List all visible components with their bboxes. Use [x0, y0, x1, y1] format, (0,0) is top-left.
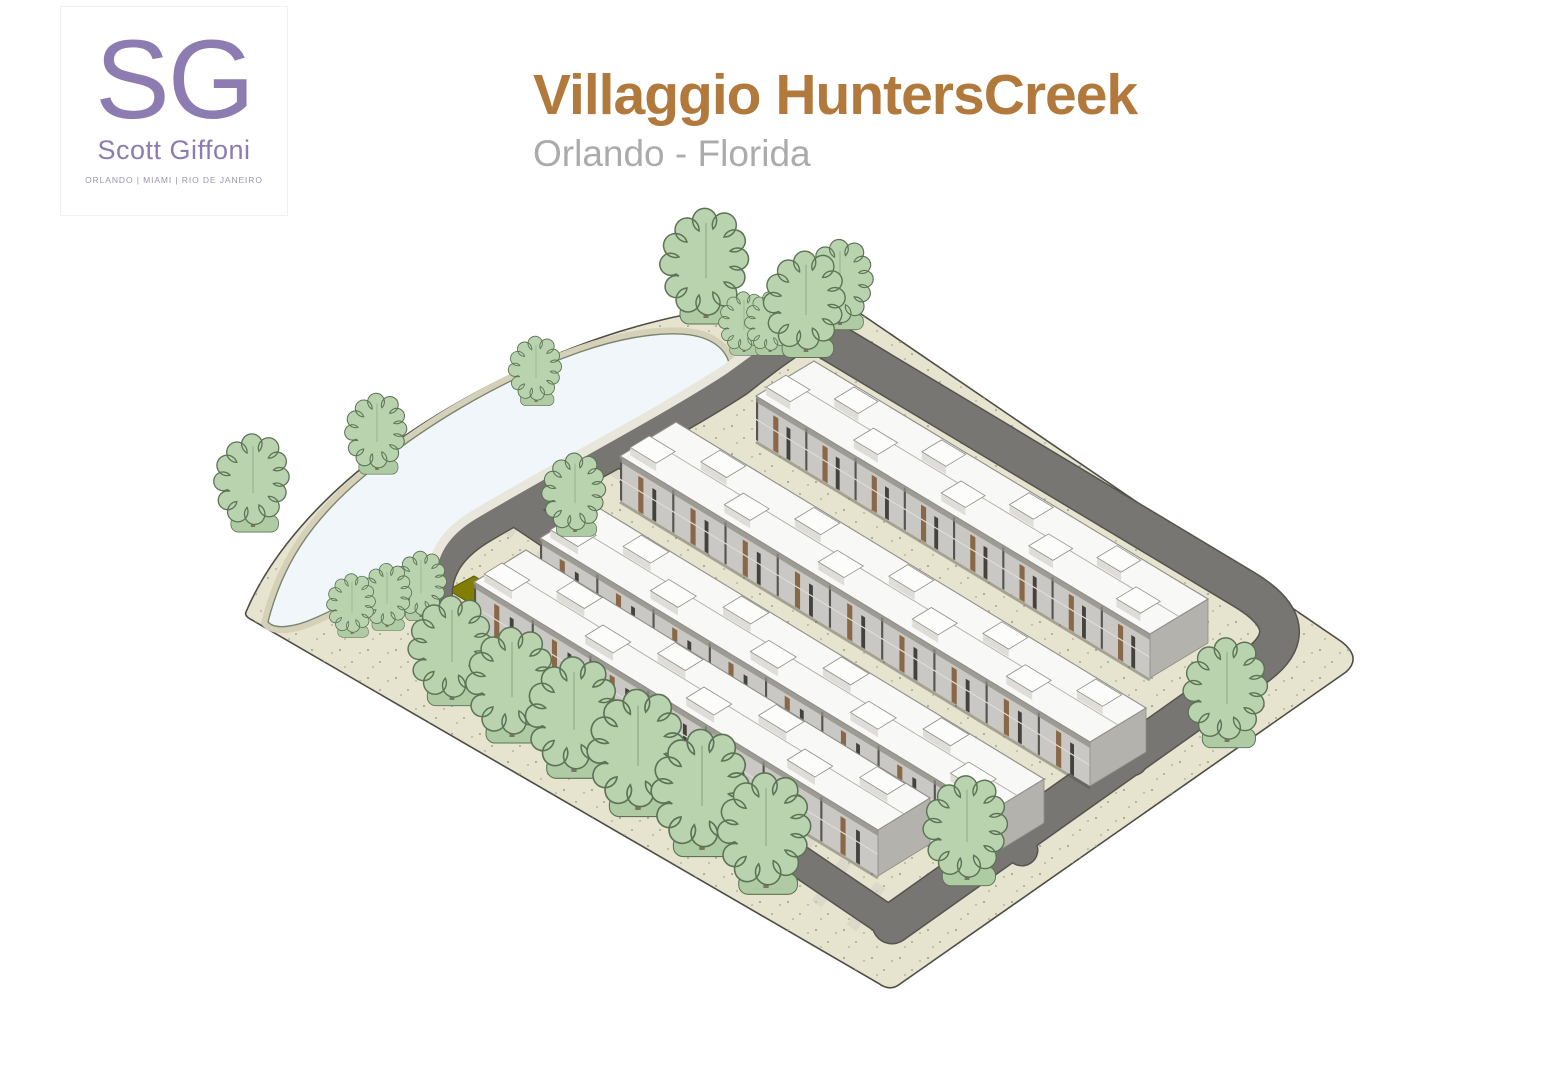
scene-root — [214, 208, 1353, 987]
site-plan-rendering — [0, 0, 1560, 1080]
tree — [214, 434, 289, 532]
